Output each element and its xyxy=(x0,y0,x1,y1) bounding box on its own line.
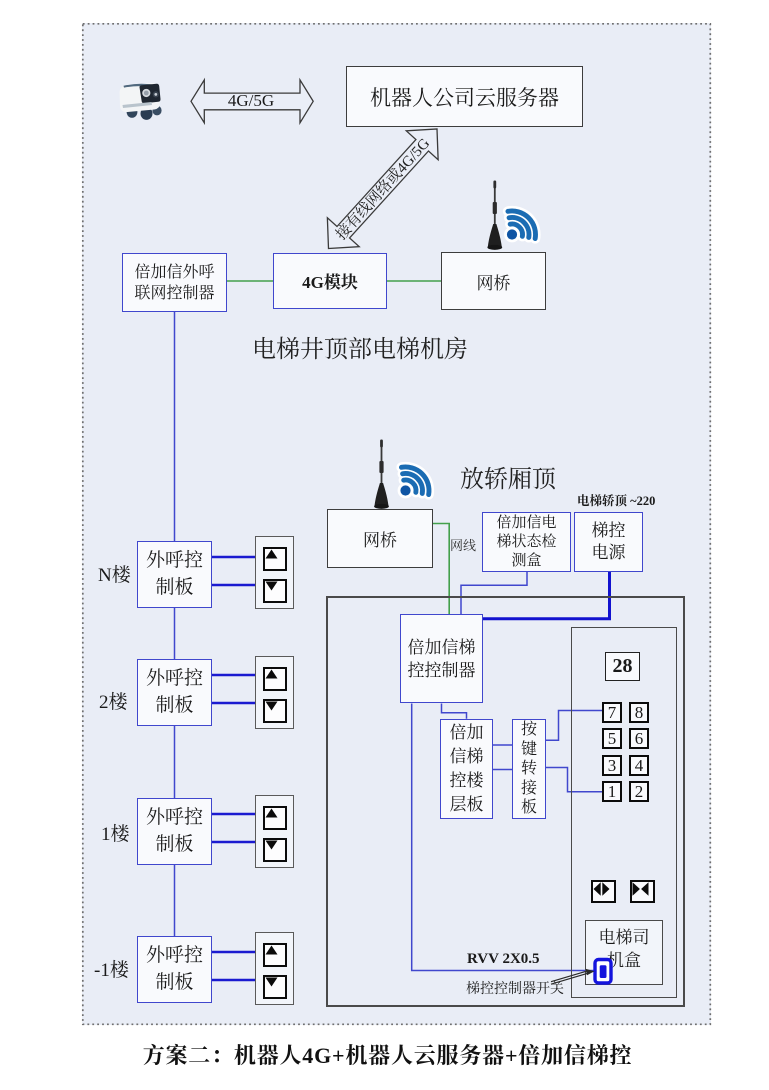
svg-text:接有线网络或4G/5G: 接有线网络或4G/5G xyxy=(333,135,434,243)
